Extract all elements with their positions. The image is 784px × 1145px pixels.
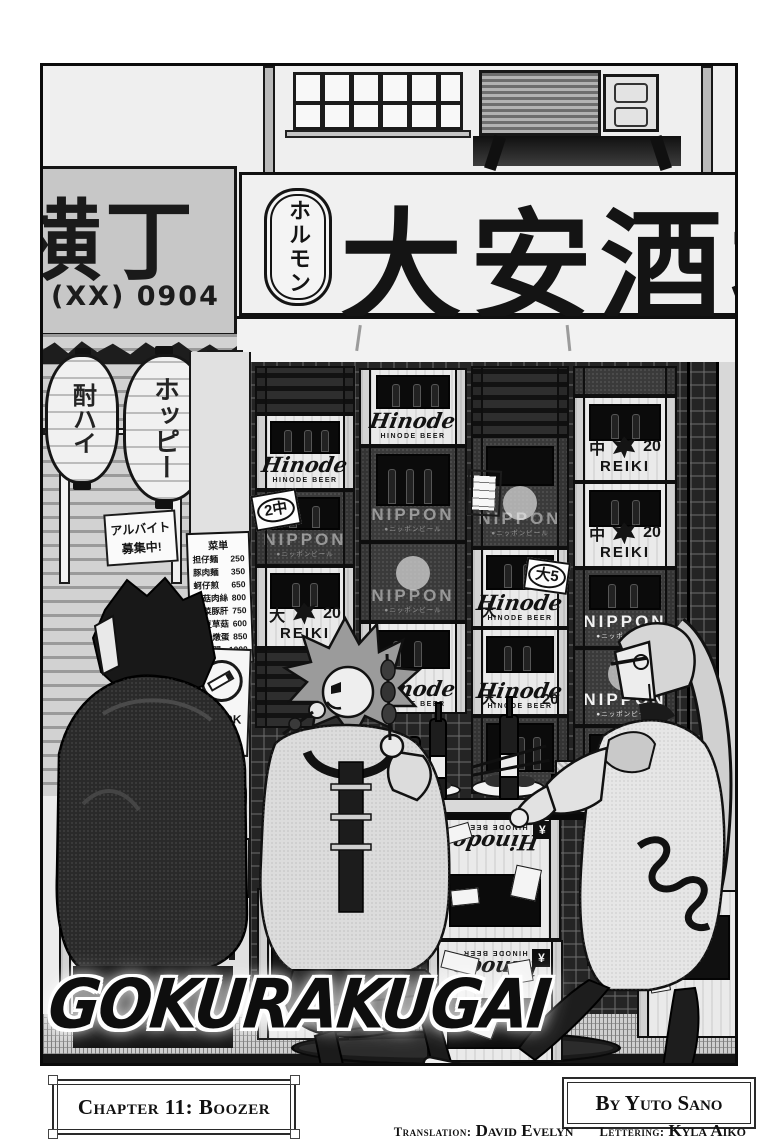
author-byline: By Yuto Sano	[596, 1091, 723, 1116]
menu-item-name: 担仔麺	[192, 553, 218, 567]
lantern-cap	[73, 482, 91, 490]
hiring-line2: 募集中!	[121, 538, 162, 558]
air-conditioner	[479, 70, 601, 136]
beer-crate-reiki: 中 20 REIKI	[573, 396, 677, 482]
beer-crate-nippon: NIPPON ●ニッポンビール	[359, 446, 467, 542]
main-panel: ホルモン 大安酒場 横丁 (XX) 0904 酎ハイ	[40, 63, 738, 1066]
lettering-label: Lettering:	[599, 1125, 664, 1139]
sign-pole	[701, 66, 713, 178]
ac-side-panel	[603, 74, 659, 132]
note-card	[466, 469, 502, 517]
translation-label: Translation:	[394, 1125, 472, 1139]
barred-window	[293, 72, 463, 130]
corner-handle	[48, 1075, 58, 1085]
lettering-name: Kyla Aiko	[669, 1121, 747, 1140]
alley-sign-text: 横丁	[43, 171, 197, 298]
beer-crate-hinode: Hinode HINODE BEER	[359, 368, 467, 446]
sign-pole	[263, 66, 275, 178]
credits-line: Translation:David EvelynLettering:Kyla A…	[240, 1121, 746, 1141]
beer-crate-slatted	[255, 366, 355, 414]
beer-crate-dark	[573, 366, 677, 396]
lantern-cap	[155, 500, 173, 509]
series-logo: GOKURAKUGAI	[45, 965, 553, 1044]
beer-crate-hinode: Hinode HINODE BEER	[255, 414, 355, 490]
reiki-logo	[612, 436, 636, 458]
menu-item-price: 250	[230, 552, 245, 565]
corner-handle	[48, 1129, 58, 1139]
horumon-badge: ホルモン	[264, 188, 332, 306]
awning	[237, 316, 738, 362]
translation-name: David Evelyn	[476, 1121, 574, 1140]
beer-crate-reiki: 中 20 REIKI	[573, 482, 677, 568]
lantern-chuhai-text: 酎ハイ	[65, 383, 100, 455]
window-sill	[285, 130, 471, 138]
badge-text: ホルモン	[282, 199, 314, 295]
manga-page: ホルモン 大安酒場 横丁 (XX) 0904 酎ハイ	[0, 0, 784, 1145]
hiring-poster: アルバイト 募集中!	[103, 510, 178, 567]
chapter-title: Chapter 11: Boozer	[78, 1095, 270, 1120]
menu-title: 菜単	[192, 536, 244, 553]
reiki-logo	[612, 522, 636, 544]
alley-sign: 横丁 (XX) 0904	[43, 166, 237, 336]
hiring-line1: アルバイト	[110, 518, 171, 539]
lantern-hoppy-text: ホッピー	[148, 376, 185, 480]
corner-handle	[290, 1075, 300, 1085]
izakaya-main-sign: ホルモン 大安酒場	[239, 172, 738, 316]
beer-crate-slatted	[471, 366, 569, 436]
lantern-chuhai: 酎ハイ	[45, 354, 119, 484]
alley-sign-phone: (XX) 0904	[51, 281, 220, 312]
tag-dai5: 大5	[523, 557, 571, 595]
